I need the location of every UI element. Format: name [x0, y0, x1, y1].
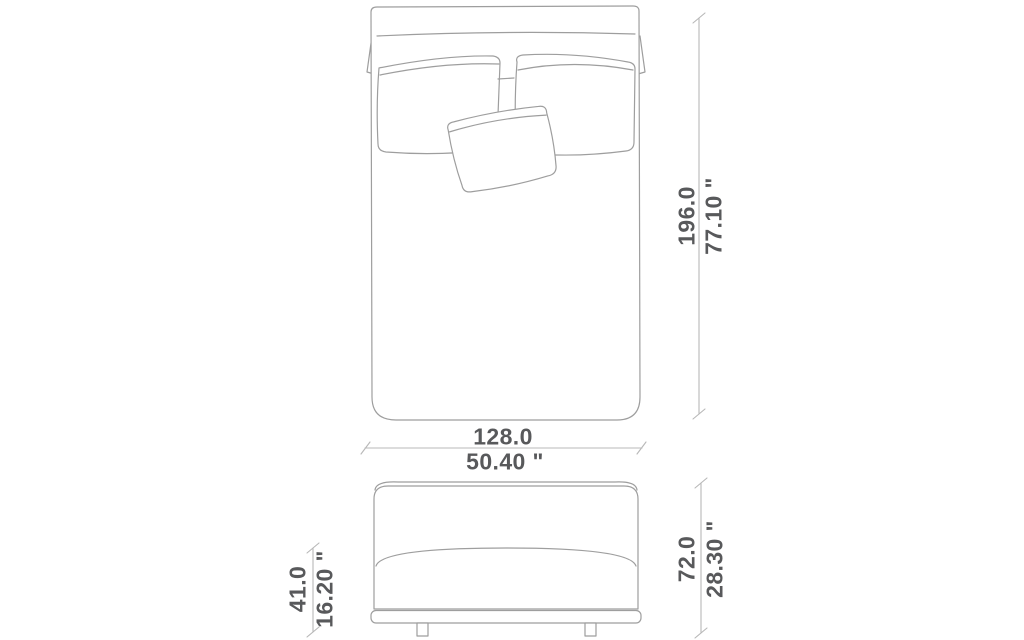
leg-right: [585, 623, 596, 636]
bed-top-view: [367, 6, 645, 420]
width-metric-label: 128.0: [473, 426, 533, 449]
front-base-rail: [371, 611, 641, 624]
width-imperial-label: 50.40 ": [466, 451, 544, 474]
length-metric-label: 196.0: [676, 186, 699, 246]
height-metric-label: 72.0: [676, 536, 699, 582]
bed-dimension-diagram: 196.0 77.10 " 128.0 50.40 " 72.0 28.30 "…: [0, 0, 1024, 640]
bed-line-drawing: [0, 0, 1024, 640]
leg-left: [417, 623, 428, 636]
base-height-imperial-label: 16.20 ": [314, 550, 337, 628]
length-imperial-label: 77.10 ": [703, 177, 726, 255]
base-height-metric-label: 41.0: [287, 566, 310, 612]
bed-front-view: [371, 482, 641, 636]
height-imperial-label: 28.30 ": [704, 520, 727, 598]
